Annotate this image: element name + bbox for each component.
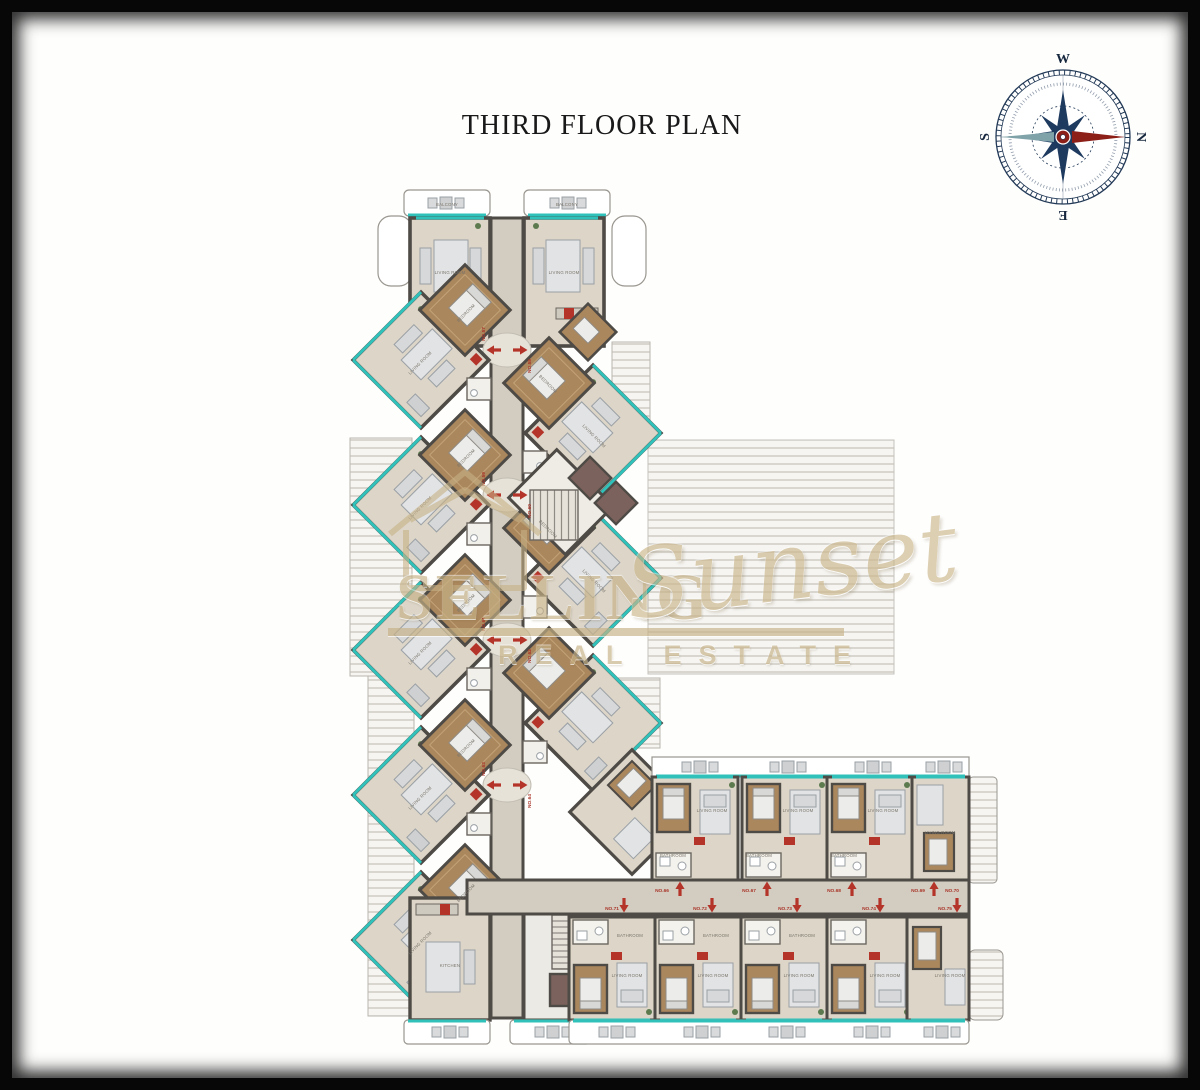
unit-number-label: NO.64 [527, 794, 533, 808]
room-label: LIVING ROOM [549, 270, 580, 275]
unit-number-label: NO.60 [527, 504, 533, 518]
room-label: BALCONY [436, 202, 458, 207]
room-label: BALCONY [556, 202, 578, 207]
room-label: BATHROOM [746, 853, 772, 858]
unit-number-label: NO.75 [938, 906, 952, 912]
floor-plan-sheet: LIVING ROOMLIVING ROOMLIVING ROOMLIVING … [0, 0, 1200, 1090]
bottom-unit [410, 898, 490, 1020]
compass-east-label: E [1058, 207, 1067, 222]
unit-number-label: NO.73 [778, 906, 792, 912]
room-label: LIVING ROOM [925, 830, 956, 835]
room-label: BATHROOM [831, 853, 857, 858]
room-label: LIVING ROOM [612, 973, 643, 978]
room-label: LIVING ROOM [435, 270, 466, 275]
room-label: BATHROOM [660, 853, 686, 858]
compass-west-label: W [1056, 52, 1070, 67]
room-label: BATHROOM [703, 933, 729, 938]
unit-number-label: NO.62 [527, 649, 533, 663]
room-label: LIVING ROOM [698, 973, 729, 978]
unit-number-label: NO.71 [605, 906, 619, 912]
room-label: LIVING ROOM [870, 973, 901, 978]
room-label: LIVING ROOM [783, 808, 814, 813]
unit-number-label: NO.67 [742, 888, 756, 894]
unit-number-label: NO.68 [827, 888, 841, 894]
room-label: KITCHEN [440, 963, 460, 968]
room-label: BATHROOM [617, 933, 643, 938]
compass-south-label: S [978, 133, 993, 141]
room-label: LIVING ROOM [784, 973, 815, 978]
unit-number-label: NO.72 [693, 906, 707, 912]
room-label: BATHROOM [789, 933, 815, 938]
room-label: LIVING ROOM [697, 808, 728, 813]
unit-number-label: NO.74 [862, 906, 876, 912]
room-label: LIVING ROOM [868, 808, 899, 813]
compass-rose-icon: W N E S [974, 48, 1152, 226]
unit-number-label: NO.69 [911, 888, 925, 894]
unit-number-label: NO.70 [945, 888, 959, 894]
unit-number-label: NO.63 [481, 762, 487, 776]
unit-number-label: NO.58 [527, 359, 533, 373]
compass-north-label: N [1133, 132, 1148, 142]
unit-number-label: NO.61 [481, 617, 487, 631]
room-label: LIVING ROOM [935, 973, 966, 978]
unit-number-label: NO.57 [481, 327, 487, 341]
unit-number-label: NO.66 [655, 888, 669, 894]
unit-number-label: NO.59 [481, 472, 487, 486]
